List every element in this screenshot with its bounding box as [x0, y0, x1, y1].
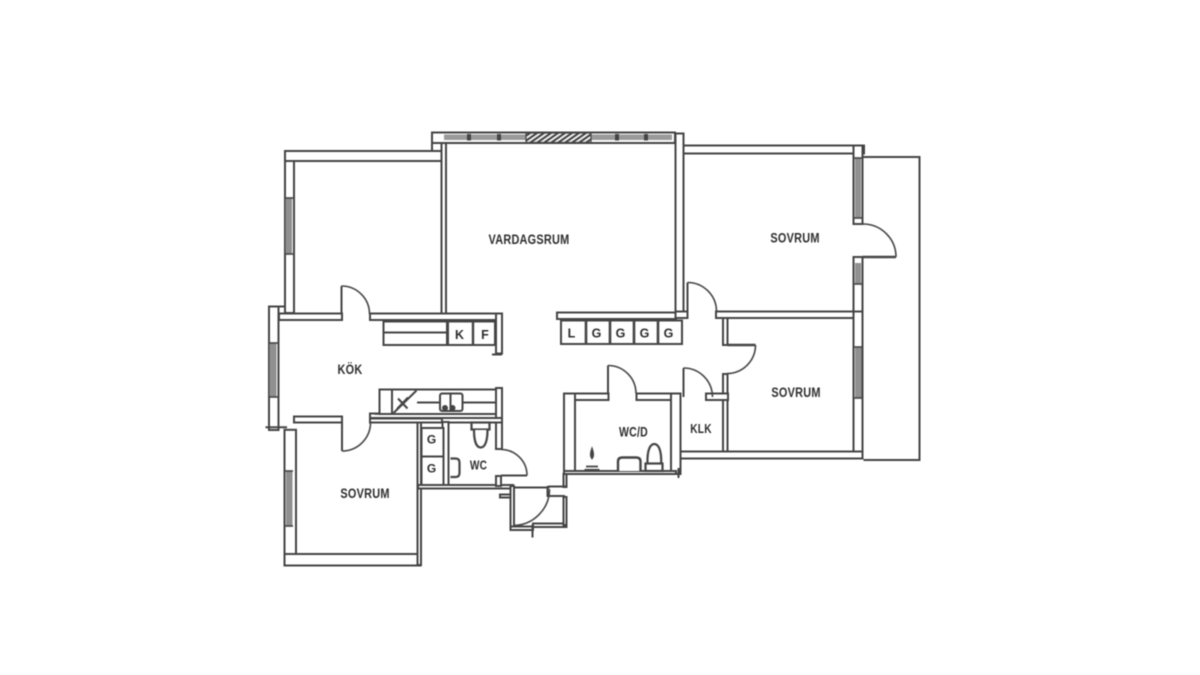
svg-text:WC/D: WC/D	[619, 424, 648, 440]
svg-text:L: L	[568, 327, 576, 341]
svg-text:G: G	[427, 433, 436, 447]
svg-text:G: G	[427, 462, 436, 476]
svg-text:F: F	[481, 328, 489, 342]
svg-text:SOVRUM: SOVRUM	[770, 230, 819, 246]
svg-text:G: G	[664, 327, 674, 341]
svg-text:WC: WC	[470, 458, 488, 472]
svg-text:SOVRUM: SOVRUM	[340, 486, 389, 502]
svg-text:G: G	[616, 327, 626, 341]
svg-text:VARDAGSRUM: VARDAGSRUM	[489, 232, 570, 248]
svg-text:G: G	[640, 327, 650, 341]
svg-text:KÖK: KÖK	[338, 361, 363, 378]
svg-text:SOVRUM: SOVRUM	[771, 385, 820, 401]
svg-text:KLK: KLK	[690, 422, 712, 436]
svg-text:K: K	[455, 328, 464, 342]
svg-text:G: G	[592, 327, 602, 341]
